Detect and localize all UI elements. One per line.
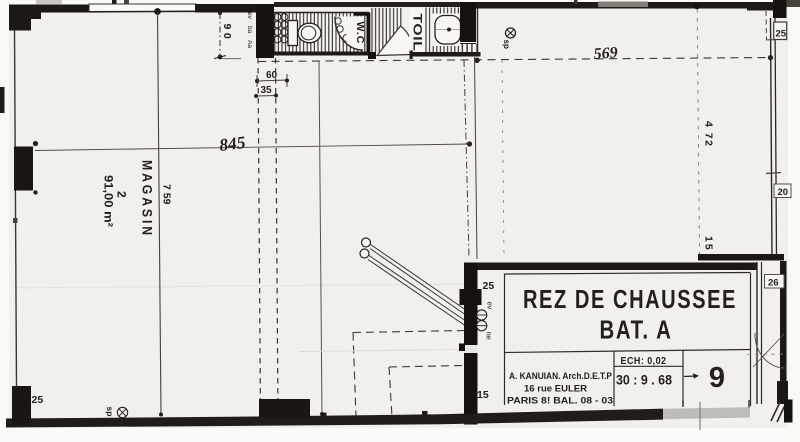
svg-text:ev: ev [486,302,495,310]
svg-text:A. KANUIAN. Arch.D.E.T.P: A. KANUIAN. Arch.D.E.T.P [509,371,613,382]
svg-text:4 72: 4 72 [703,121,715,147]
svg-text:9: 9 [709,362,725,394]
svg-text:ne: ne [485,332,494,340]
svg-text:TOIL: TOIL [411,14,425,52]
svg-text:25: 25 [483,280,495,292]
svg-text:569: 569 [593,44,618,63]
svg-text:BAT. A: BAT. A [600,315,673,345]
svg-text:7 59: 7 59 [161,184,173,205]
svg-text:W.C: W.C [354,22,366,45]
svg-text:MAGASIN: MAGASIN [140,160,155,238]
svg-text:26: 26 [768,277,779,288]
svg-text:845: 845 [218,132,247,155]
svg-text:sp: sp [502,40,511,49]
svg-text:91,00 m²: 91,00 m² [102,175,116,227]
svg-text:ba: ba [246,26,253,34]
svg-text:16 rue EULER: 16 rue EULER [524,384,587,395]
svg-text:30 : 9 . 68: 30 : 9 . 68 [616,372,672,388]
svg-text:25: 25 [776,29,787,40]
svg-text:25: 25 [32,394,44,406]
svg-text:PARIS 8! BAL. 08 - 03: PARIS 8! BAL. 08 - 03 [507,396,613,407]
svg-text:15: 15 [703,236,715,252]
svg-text:Aa: Aa [246,40,253,48]
svg-text:ev: ev [246,12,253,20]
svg-text:20: 20 [778,187,789,198]
svg-text:sp: sp [105,407,115,417]
svg-text:35: 35 [261,85,273,96]
svg-text:ECH: 0,02: ECH: 0,02 [621,356,667,367]
svg-text:15: 15 [477,389,489,401]
svg-text:90: 90 [221,24,233,43]
svg-text:REZ DE CHAUSSEE: REZ DE CHAUSSEE [523,284,737,314]
svg-text:2: 2 [115,191,129,198]
